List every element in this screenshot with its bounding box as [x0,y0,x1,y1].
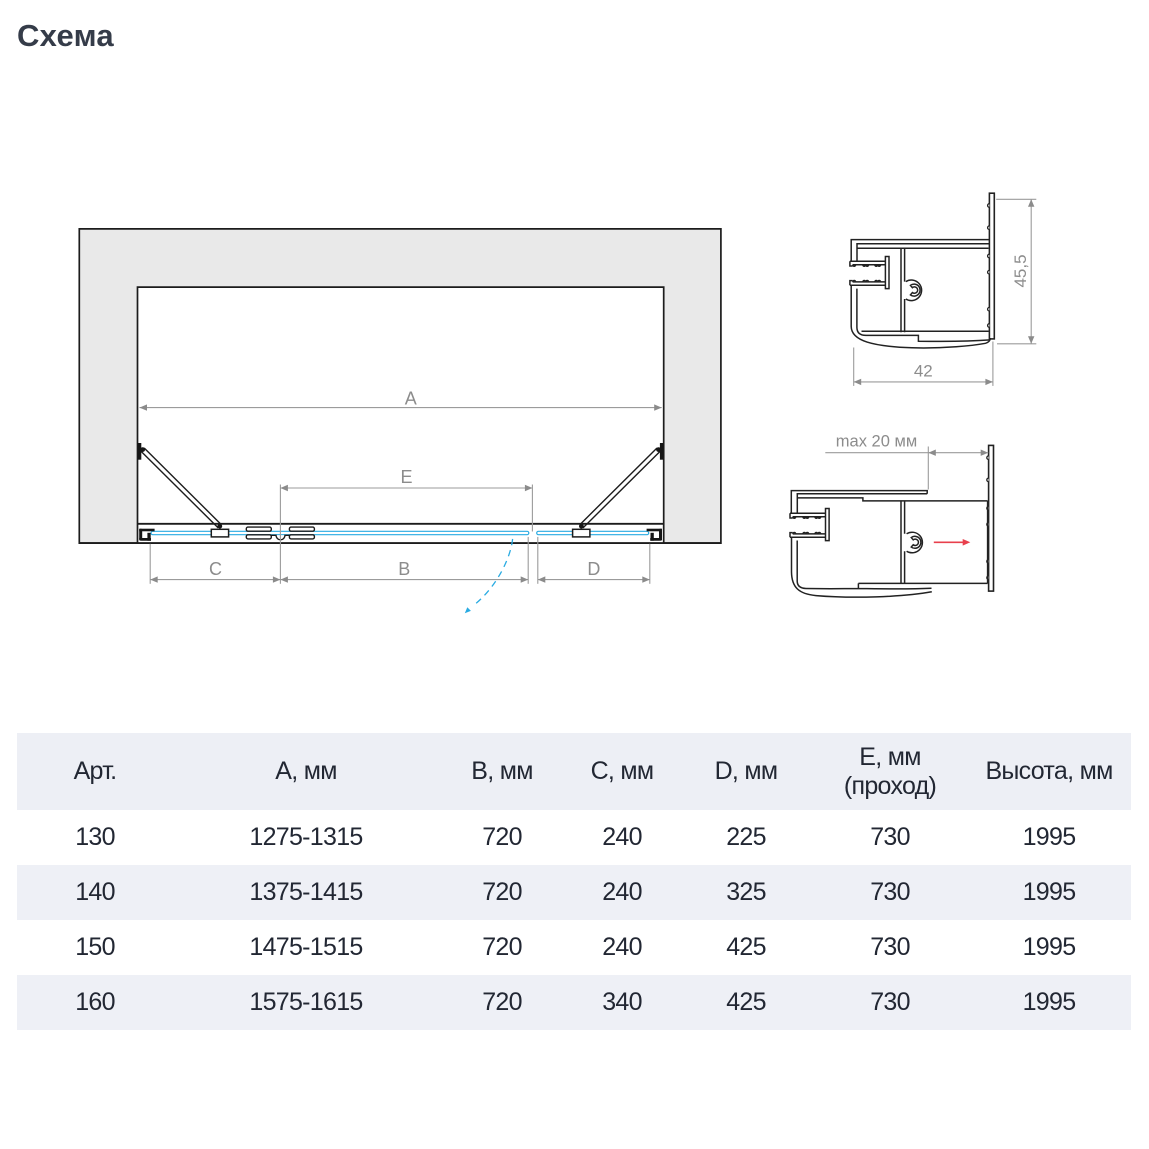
svg-text:max 20 мм: max 20 мм [836,432,917,450]
svg-text:B: B [398,559,410,579]
svg-text:E: E [400,467,412,487]
svg-text:C: C [209,559,222,579]
svg-text:42: 42 [914,361,933,380]
svg-text:A: A [405,388,417,408]
svg-text:45,5: 45,5 [1011,254,1030,287]
svg-text:D: D [587,559,600,579]
